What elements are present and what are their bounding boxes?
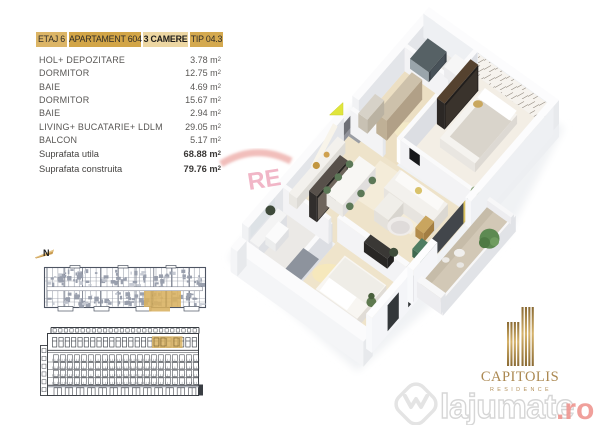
svg-text:N: N: [43, 248, 50, 258]
svg-text:lajumate: lajumate: [440, 388, 574, 425]
svg-text:.ro: .ro: [556, 393, 594, 425]
svg-text:RE: RE: [246, 164, 283, 196]
svg-text:CAPITOLIS: CAPITOLIS: [481, 369, 559, 385]
